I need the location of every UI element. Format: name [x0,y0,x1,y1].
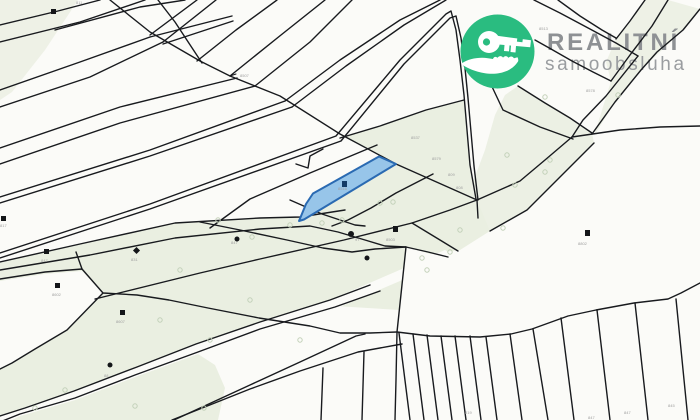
svg-text:8537: 8537 [411,135,421,140]
svg-text:8602: 8602 [52,292,62,297]
svg-text:831: 831 [131,257,138,262]
svg-text:819: 819 [465,410,472,415]
svg-text:8503: 8503 [386,237,396,242]
svg-text:817: 817 [0,223,7,228]
svg-text:847: 847 [41,258,48,263]
svg-text:809: 809 [448,172,455,177]
svg-text:88: 88 [104,373,109,378]
svg-text:8578: 8578 [586,88,596,93]
svg-text:845: 845 [668,403,675,408]
svg-text:8607: 8607 [116,319,126,324]
svg-text:847: 847 [588,415,595,420]
svg-text:847: 847 [231,240,238,245]
svg-text:847: 847 [624,410,631,415]
svg-text:811: 811 [76,0,83,5]
svg-text:808: 808 [456,185,463,190]
svg-text:8507: 8507 [240,73,250,78]
svg-text:8513: 8513 [539,26,549,31]
svg-text:8802: 8802 [578,241,588,246]
svg-text:8516: 8516 [338,186,348,191]
svg-text:97: 97 [355,237,360,242]
svg-text:8579: 8579 [432,156,442,161]
